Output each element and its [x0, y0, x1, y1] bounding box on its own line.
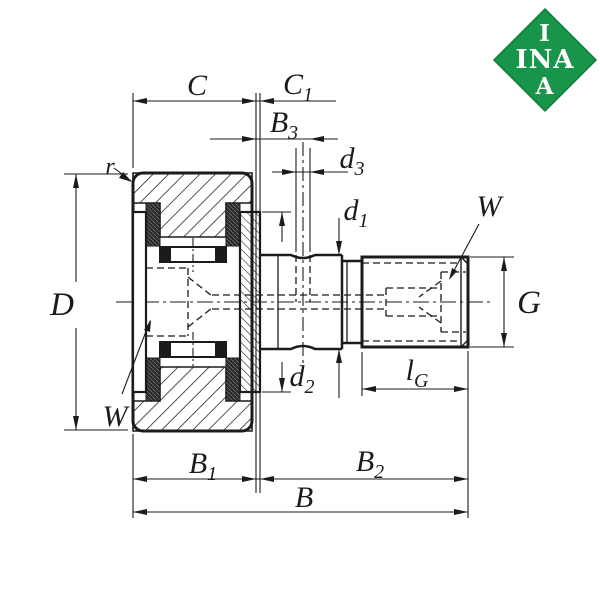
cam-follower-drawing: I INA A [0, 0, 600, 600]
label-G: G [517, 285, 541, 321]
seal-top-right [226, 203, 240, 246]
stud-flange [240, 212, 260, 392]
arrow-G-bottom [501, 333, 507, 347]
hex-socket-left-cone-top [188, 277, 212, 296]
collar-top-edge [260, 255, 342, 258]
bearing-drawing-page: I INA A [0, 0, 600, 600]
arrow-B2-right [454, 476, 468, 482]
label-W-left: W [103, 400, 131, 433]
label-B2: B2 [356, 445, 384, 483]
label-r: r [105, 154, 115, 180]
arrow-C-left [133, 98, 147, 104]
arrow-d1-top [336, 241, 342, 255]
arrow-B-left [133, 509, 147, 515]
arrow-B3-left [242, 136, 256, 142]
side-washer [133, 212, 146, 392]
arrow-d1-bottom [336, 349, 342, 363]
label-d3: d3 [340, 142, 365, 180]
collar-bottom-edge [260, 346, 342, 349]
hidden-lines [146, 255, 466, 341]
arrow-d3-right [310, 169, 324, 175]
seal-top-left [146, 203, 160, 246]
arrow-D-top [73, 174, 79, 188]
arrow-C1 [260, 98, 274, 104]
hex-socket-right-cone-top [419, 281, 441, 297]
arrow-d3-left [282, 169, 296, 175]
ina-logo-line2: INA [515, 45, 574, 75]
arrow-B1-left [133, 476, 147, 482]
arrow-d2-top [279, 212, 285, 226]
cage-top-left-end [160, 247, 171, 262]
label-d1: d1 [344, 194, 369, 232]
arrow-lG-left [362, 386, 376, 392]
hex-socket-left-cone-bottom [188, 308, 212, 327]
seal-bottom-left [146, 358, 160, 401]
arrow-W-right-leader [449, 268, 457, 280]
cage-bottom-left-end [160, 342, 171, 357]
arrow-B2-left [260, 476, 274, 482]
label-C: C [187, 69, 208, 102]
arrow-lG-right [454, 386, 468, 392]
cage-bottom-right-end [215, 342, 226, 357]
label-lG: lG [406, 354, 429, 392]
label-D: D [49, 287, 74, 323]
arrow-B1-right [242, 476, 256, 482]
arrow-D-bottom [73, 416, 79, 430]
ina-logo: I INA A [494, 9, 596, 111]
label-B: B [295, 481, 313, 514]
arrow-d2-bottom [279, 378, 285, 392]
seal-bottom-right [226, 358, 240, 401]
cage-top-right-end [215, 247, 226, 262]
arrow-B-right [454, 509, 468, 515]
arrow-B3-right [310, 136, 324, 142]
label-B3: B3 [270, 106, 298, 144]
arrow-C-right [242, 98, 256, 104]
arrow-G-top [501, 257, 507, 271]
ina-logo-line3: A [535, 73, 555, 100]
label-d2: d2 [290, 360, 315, 398]
ina-logo-line1: I [539, 20, 551, 47]
hex-socket-right-cone-bottom [419, 307, 441, 323]
label-C1: C1 [283, 68, 313, 106]
label-W-right: W [477, 190, 505, 223]
label-B1: B1 [189, 447, 217, 485]
